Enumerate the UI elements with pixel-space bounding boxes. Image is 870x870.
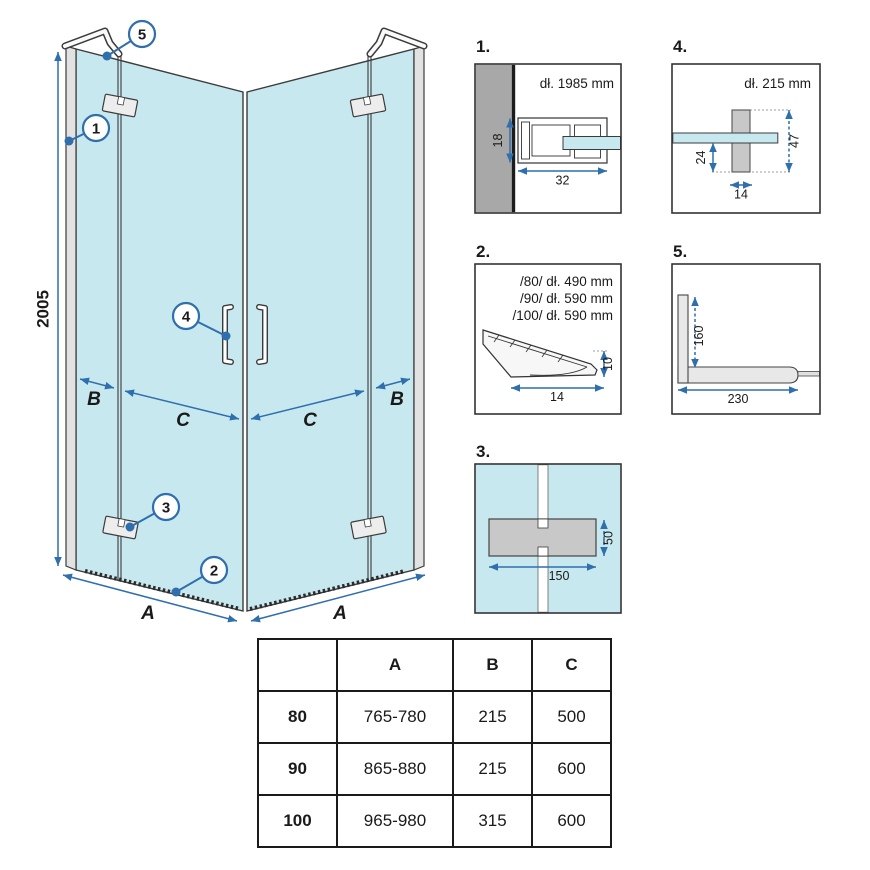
header-b: B	[453, 639, 532, 691]
svg-text:32: 32	[556, 174, 570, 188]
cell-80-c: 500	[532, 691, 611, 743]
table-row: 90 865-880 215 600	[258, 743, 611, 795]
callout-4-number: 4	[182, 309, 191, 326]
svg-text:14: 14	[550, 390, 564, 404]
detail-1-label: 1.	[476, 37, 490, 56]
svg-text:150: 150	[549, 569, 570, 583]
detail-1-wall-profile: 1. dł. 1985 mm 18 32	[475, 37, 621, 213]
callout-3-number: 3	[162, 500, 170, 517]
detail-2-dim-14: 14	[511, 388, 604, 404]
main-drawing: 2005 A A B C C B	[34, 21, 426, 624]
row-label-80: 80	[258, 691, 337, 743]
cell-100-a: 965-980	[337, 795, 453, 847]
wall-profile-left	[66, 46, 76, 570]
detail-2-bottom-seal: 2. /80/ dł. 490 mm /90/ dł. 590 mm /100/…	[475, 242, 621, 414]
svg-text:24: 24	[694, 151, 708, 165]
row-label-100: 100	[258, 795, 337, 847]
dimension-b-right-label: B	[390, 389, 404, 410]
cell-100-b: 315	[453, 795, 532, 847]
detail-2-length-80: /80/ dł. 490 mm	[520, 274, 613, 289]
dimension-a-right-label: A	[332, 603, 347, 624]
detail-1-length: dł. 1985 mm	[540, 76, 614, 91]
svg-text:14: 14	[734, 188, 748, 202]
cell-80-b: 215	[453, 691, 532, 743]
size-table: A B C 80 765-780 215 500 90 865-880 215 …	[257, 638, 612, 848]
detail-5-dim-230: 230	[678, 390, 798, 406]
row-label-90: 90	[258, 743, 337, 795]
detail-4-length: dł. 215 mm	[744, 76, 811, 91]
svg-text:47: 47	[788, 134, 802, 148]
detail-4-dim-14: 14	[730, 185, 752, 202]
glass-section	[673, 133, 778, 143]
detail-2-dim-10: 10	[601, 351, 615, 377]
dimension-height-label: 2005	[34, 290, 53, 328]
shower-enclosure-technical-drawing: 2005 A A B C C B	[0, 0, 870, 870]
detail-4-label: 4.	[673, 37, 687, 56]
header-empty	[258, 639, 337, 691]
svg-text:230: 230	[728, 392, 749, 406]
detail-5-support-bar: 5. 160 230	[672, 242, 820, 414]
svg-text:50: 50	[602, 531, 616, 545]
cell-90-a: 865-880	[337, 743, 453, 795]
callout-1-number: 1	[92, 121, 100, 138]
hinge-section	[489, 519, 596, 556]
dimension-a-left-label: A	[140, 603, 155, 624]
svg-text:160: 160	[692, 326, 706, 347]
detail-3-label: 3.	[476, 442, 490, 461]
dimension-c-left-label: C	[176, 410, 190, 431]
detail-4-dim-47: 47	[788, 110, 802, 172]
wall-edge	[512, 65, 515, 212]
table-row: 100 965-980 315 600	[258, 795, 611, 847]
size-table-header-row: A B C	[258, 639, 611, 691]
cell-90-b: 215	[453, 743, 532, 795]
glass-panel-right	[247, 49, 414, 611]
dimension-c-right-label: C	[303, 410, 317, 431]
detail-2-label: 2.	[476, 242, 490, 261]
detail-4-dim-24: 24	[694, 143, 713, 172]
header-c: C	[532, 639, 611, 691]
detail-4-handle: 4. dł. 215 mm 24 47 14	[672, 37, 820, 213]
table-row: 80 765-780 215 500	[258, 691, 611, 743]
wall-profile-right	[414, 46, 424, 570]
cell-80-a: 765-780	[337, 691, 453, 743]
dimension-height: 2005	[34, 52, 59, 566]
cell-100-c: 600	[532, 795, 611, 847]
detail-2-length-100: /100/ dł. 590 mm	[512, 308, 613, 323]
dimension-b-left-label: B	[87, 389, 101, 410]
callout-5-number: 5	[138, 27, 146, 44]
detail-2-length-90: /90/ dł. 590 mm	[520, 291, 613, 306]
seal-profile-section	[483, 330, 597, 377]
svg-text:10: 10	[601, 357, 615, 371]
cell-90-c: 600	[532, 743, 611, 795]
glass-section	[563, 137, 621, 150]
header-a: A	[337, 639, 453, 691]
detail-5-label: 5.	[673, 242, 687, 261]
callout-2-number: 2	[210, 563, 218, 580]
detail-5-dim-160: 160	[692, 297, 706, 368]
svg-text:18: 18	[491, 134, 505, 148]
detail-1-dim-32: 32	[518, 171, 607, 188]
detail-3-hinge: 3. 50 150	[475, 442, 621, 613]
